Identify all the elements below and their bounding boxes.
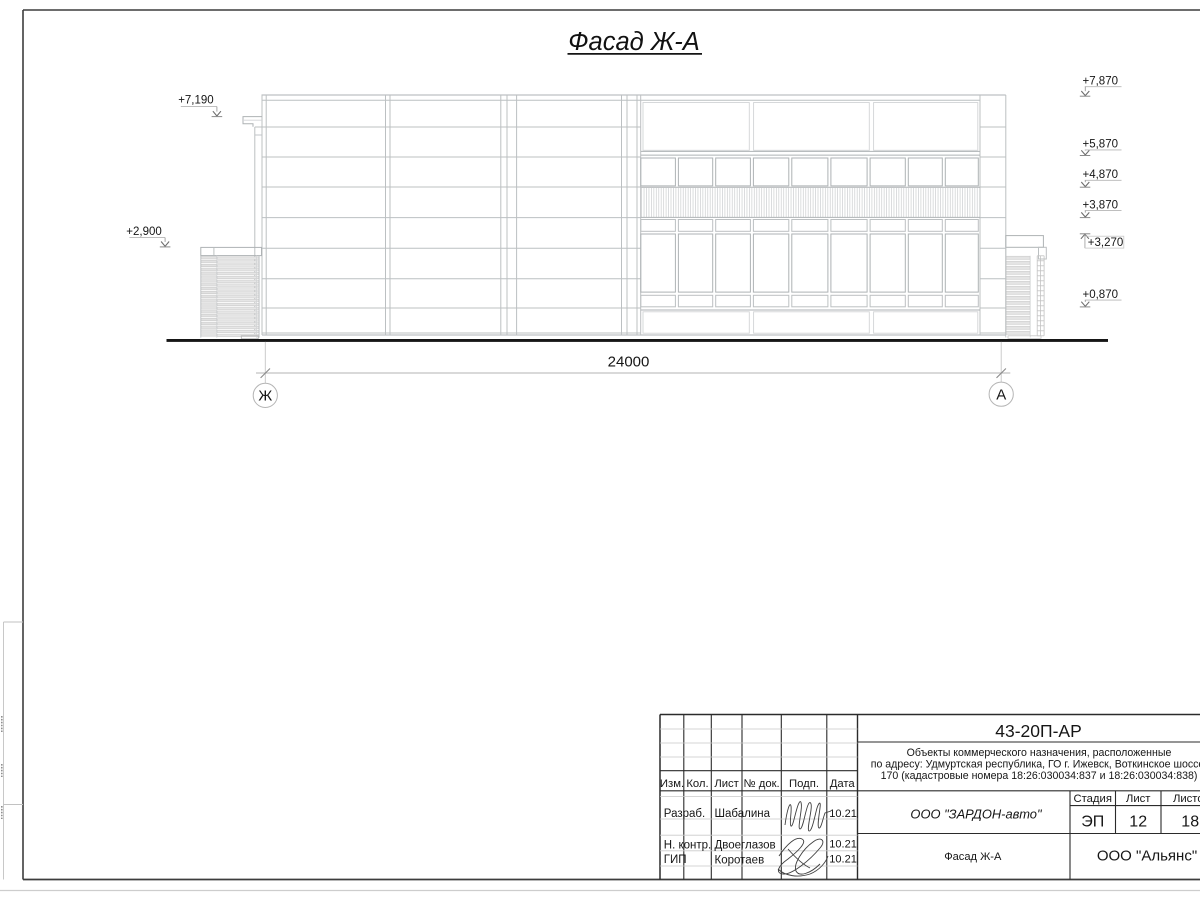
svg-text:Дата: Дата	[830, 778, 856, 790]
svg-text:10.21: 10.21	[829, 808, 857, 820]
svg-text:+7,870: +7,870	[1083, 76, 1119, 88]
svg-text:Лист: Лист	[1126, 793, 1151, 805]
svg-text:Разраб.: Разраб.	[664, 808, 705, 820]
svg-text:ООО "ЗАРДОН-авто": ООО "ЗАРДОН-авто"	[910, 806, 1043, 821]
svg-text:Н. контр.: Н. контр.	[664, 839, 711, 851]
svg-text:Лист: Лист	[714, 778, 739, 790]
svg-text:Листов: Листов	[1173, 793, 1200, 805]
svg-text:Изм.: Изм.	[660, 778, 684, 790]
svg-text:ГИП: ГИП	[664, 854, 687, 866]
svg-text:Шабалина: Шабалина	[715, 808, 771, 820]
svg-text:ЭП: ЭП	[1081, 814, 1104, 831]
svg-text:+4,870: +4,870	[1083, 169, 1119, 181]
svg-text:ООО "Альянс": ООО "Альянс"	[1097, 848, 1197, 865]
svg-text:Объекты коммерческого назначен: Объекты коммерческого назначения, распол…	[907, 747, 1172, 759]
svg-text:Двоеглазов: Двоеглазов	[715, 840, 776, 852]
svg-text:Ж: Ж	[258, 388, 272, 405]
svg-text:+0,870: +0,870	[1083, 289, 1119, 301]
svg-text:Фасад Ж-А: Фасад Ж-А	[568, 28, 699, 56]
svg-text:Фасад Ж-А: Фасад Ж-А	[944, 851, 1002, 863]
svg-text:+3,870: +3,870	[1083, 199, 1119, 211]
svg-text:№ док.: № док.	[743, 778, 779, 790]
svg-text:А: А	[996, 387, 1006, 404]
svg-text:Кол.: Кол.	[686, 778, 708, 790]
svg-text:+3,270: +3,270	[1088, 237, 1124, 249]
svg-text:+7,190: +7,190	[178, 95, 214, 107]
svg-text:Коротаев: Коротаев	[715, 855, 765, 867]
svg-text:18: 18	[1181, 814, 1199, 831]
svg-text:+5,870: +5,870	[1083, 139, 1119, 151]
svg-text:43-20П-АР: 43-20П-АР	[995, 721, 1082, 741]
svg-text:170 (кадастровые номера 18:26:: 170 (кадастровые номера 18:26:030034:837…	[881, 770, 1198, 782]
svg-text:24000: 24000	[608, 354, 650, 371]
svg-text:Стадия: Стадия	[1073, 793, 1112, 805]
svg-text:Подп.: Подп.	[789, 778, 819, 790]
svg-text:10.21: 10.21	[829, 838, 857, 850]
svg-text:+2,900: +2,900	[126, 226, 162, 238]
svg-text:по адресу: Удмуртская республи: по адресу: Удмуртская республика, ГО г. …	[871, 759, 1200, 771]
svg-text:12: 12	[1129, 814, 1147, 831]
svg-text:10.21: 10.21	[829, 853, 857, 865]
